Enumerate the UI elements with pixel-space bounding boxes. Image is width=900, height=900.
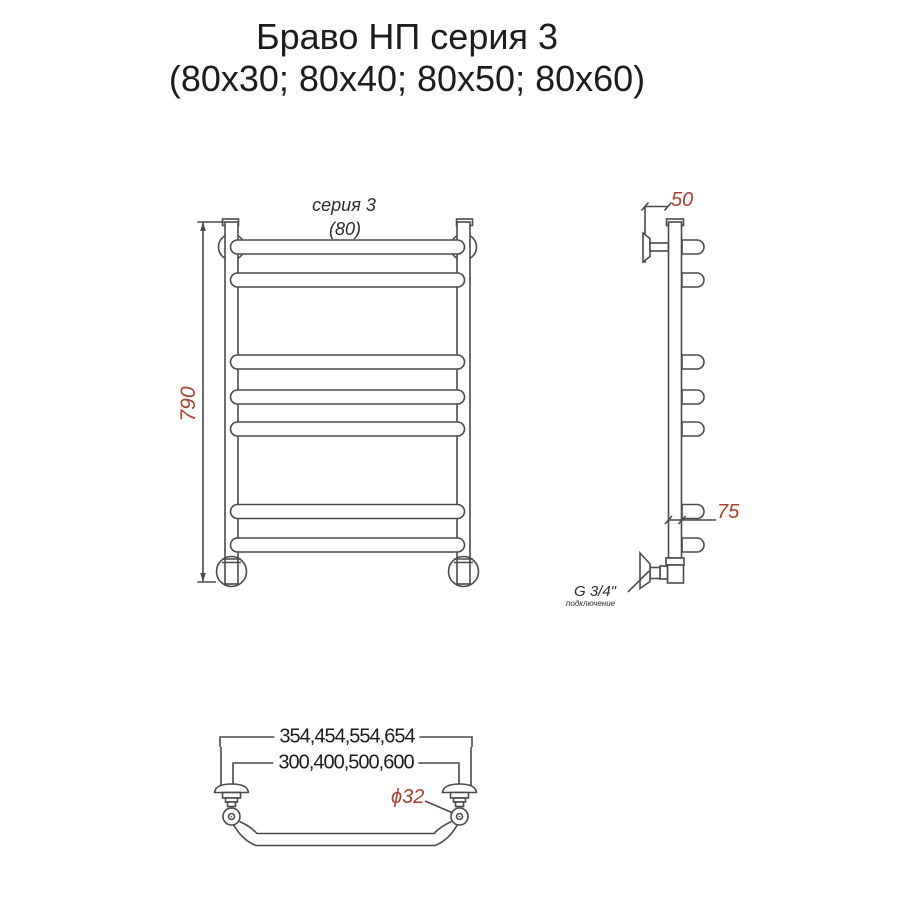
- side-rungs: [682, 240, 704, 552]
- bottom-outer-dim-text: 354,454,554,654: [274, 726, 419, 749]
- tube-diameter-text: ϕ32: [391, 786, 424, 809]
- front-height-dimension: [198, 222, 226, 582]
- page-title: Браво НП серия 3: [256, 16, 558, 58]
- front-rungs: [231, 240, 465, 552]
- linework-canvas: [0, 0, 900, 900]
- bottom-inner-dim-text: 300,400,500,600: [273, 752, 418, 775]
- connection-size-label: G 3/4": [574, 583, 616, 600]
- side-depth-dimension: [642, 203, 672, 211]
- side-spacing-dim-text: 75: [717, 501, 739, 524]
- connection-note-label: подключение: [566, 599, 615, 608]
- page-subtitle: (80x30; 80x40; 80x50; 80x60): [169, 58, 645, 100]
- side-depth-dim-text: 50: [671, 189, 693, 212]
- front-view-drawing: [198, 219, 479, 587]
- front-series-label: серия 3: [312, 195, 376, 216]
- side-connection-fitting: [628, 553, 684, 592]
- side-view-drawing: [628, 203, 716, 593]
- drawing-sheet: Браво НП серия 3 (80x30; 80x40; 80x50; 8…: [0, 0, 900, 900]
- front-width-label: (80): [329, 219, 361, 240]
- front-height-dim-text: 790: [177, 386, 201, 421]
